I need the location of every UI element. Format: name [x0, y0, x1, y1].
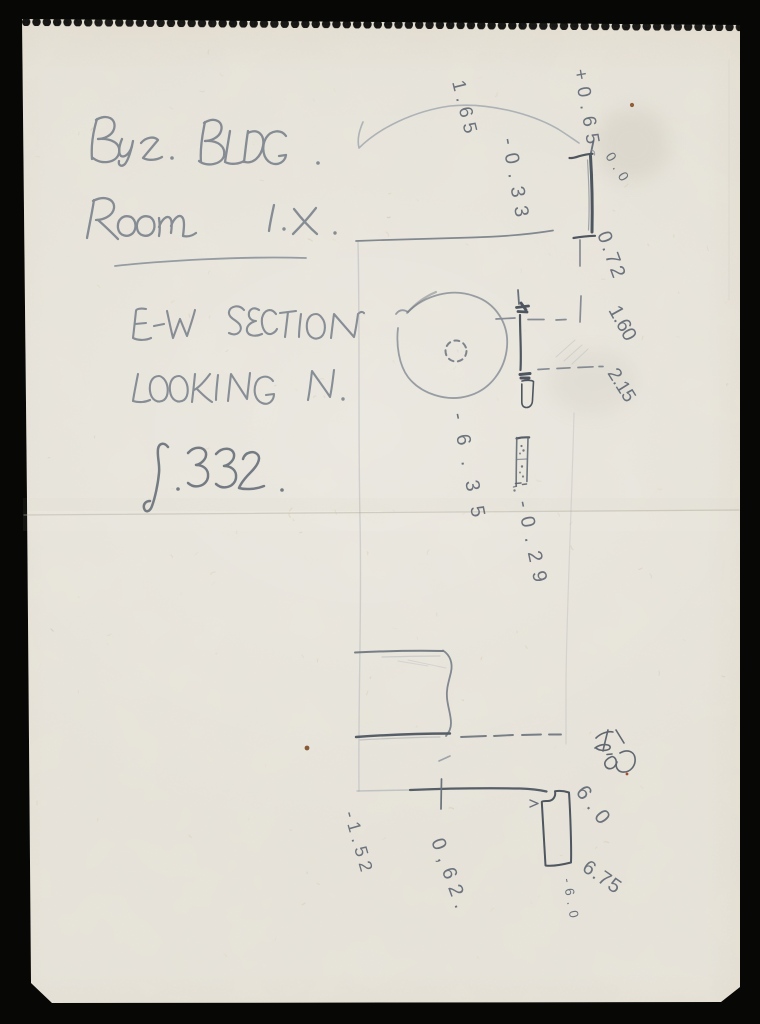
svg-text:0.72: 0.72: [592, 228, 629, 281]
svg-text:1.60: 1.60: [604, 302, 641, 345]
svg-text:-6.0: -6.0: [560, 877, 582, 919]
svg-text:-0.33: -0.33: [497, 136, 533, 219]
svg-text:6.75: 6.75: [578, 856, 625, 898]
svg-text:0,62.: 0,62.: [426, 835, 472, 911]
svg-text:1.65: 1.65: [447, 78, 480, 135]
svg-text:6.0: 6.0: [571, 781, 615, 828]
svg-text:-1.52: -1.52: [340, 809, 376, 874]
svg-text:+0.65: +0.65: [569, 67, 603, 145]
